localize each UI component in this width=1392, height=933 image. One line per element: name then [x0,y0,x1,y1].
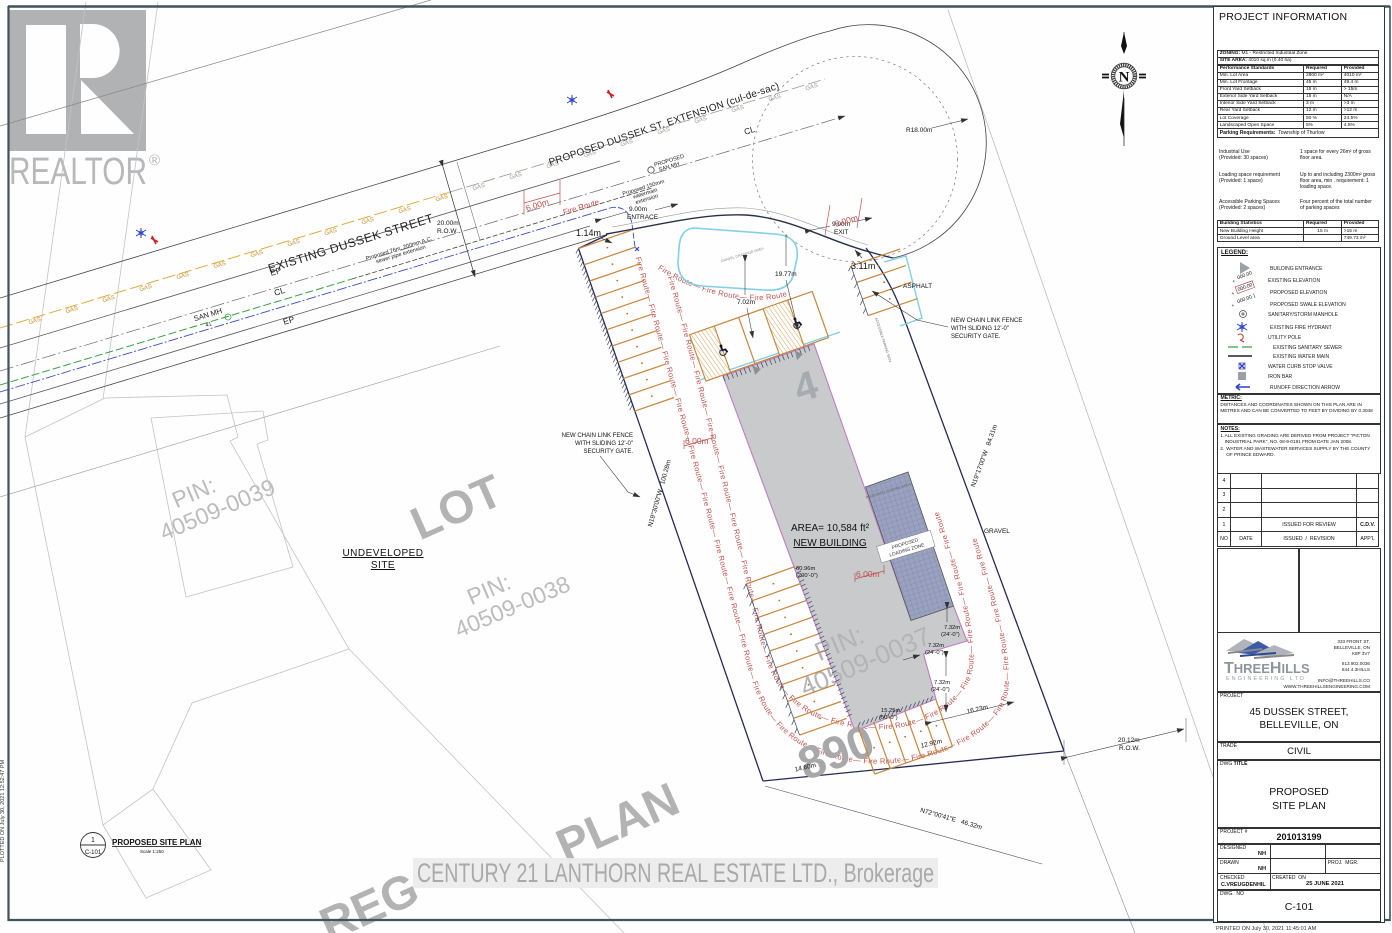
svg-text:3.11m: 3.11m [851,261,875,271]
svg-text:PRINTED ON July 30, 2021 11:45: PRINTED ON July 30, 2021 11:45:01 AM [1216,926,1317,932]
svg-text:EXISTING SANITARY SEWER: EXISTING SANITARY SEWER [1273,345,1342,351]
svg-text:WWW.THREEHILLSENGINEERING.COM: WWW.THREEHILLSENGINEERING.COM [1283,684,1370,689]
svg-text:PLOTTED ON July 30, 2021 12:52: PLOTTED ON July 30, 2021 12:52:47 PM [0,759,6,862]
svg-text:9.00m: 9.00m [629,206,647,213]
svg-text:SECURITY GATE.: SECURITY GATE. [951,334,1001,340]
svg-text:C-101: C-101 [85,850,102,856]
svg-text:®: ® [149,152,160,169]
svg-text:+: + [1231,291,1236,298]
svg-text:7.02m: 7.02m [737,299,755,306]
svg-text:CENTURY 21 LANTHORN REAL ESTAT: CENTURY 21 LANTHORN REAL ESTATE LTD., Br… [417,858,934,888]
svg-text:1.14m: 1.14m [576,228,601,238]
svg-text:EXIT: EXIT [834,229,848,236]
svg-text:+: + [1231,303,1236,310]
svg-text:REALTOR: REALTOR [9,151,147,193]
svg-text:GRAVEL: GRAVEL [984,528,1010,535]
svg-text:ASPHALT: ASPHALT [903,283,932,290]
svg-text:AREA= 10,584 ft²: AREA= 10,584 ft² [791,523,870,534]
svg-text:PROPOSED ELEVATION: PROPOSED ELEVATION [1270,290,1327,296]
svg-text:UTILITY POLE: UTILITY POLE [1268,335,1302,341]
svg-text:THREEHILLS: THREEHILLS [1224,660,1310,677]
svg-text:7.32m: 7.32m [944,625,960,631]
svg-text:R18.00m: R18.00m [906,127,932,134]
svg-text:000.00: 000.00 [1237,282,1254,293]
svg-text:ENGINEERING LTD: ENGINEERING LTD [1226,676,1306,682]
svg-text:844.4.3HILLS: 844.4.3HILLS [1342,667,1370,672]
svg-text:(24'-0"): (24'-0") [931,687,950,693]
svg-text:SANITARY/STORM MANHOLE: SANITARY/STORM MANHOLE [1268,312,1339,318]
svg-text:(50'-0"): (50'-0") [879,715,898,721]
svg-text:SITE: SITE [371,560,395,571]
svg-text:ENTRACE: ENTRACE [627,214,659,221]
svg-text:(200'-0"): (200'-0") [796,573,818,579]
svg-text:R.O.W.: R.O.W. [437,228,458,235]
svg-text:000.00: 000.00 [1237,270,1254,281]
svg-text:PROPOSED SWALE ELEVATION: PROPOSED SWALE ELEVATION [1270,302,1346,308]
svg-text:7.32m: 7.32m [928,643,944,649]
svg-text:BELLEVILLE, ON: BELLEVILLE, ON [1334,645,1370,650]
svg-text:(24'-0"): (24'-0") [941,632,960,638]
svg-text:PROPOSED SITE PLAN: PROPOSED SITE PLAN [112,838,202,847]
svg-text:+: + [1232,278,1237,285]
svg-text:1: 1 [91,837,95,844]
svg-text:EXISTING WATER MAIN: EXISTING WATER MAIN [1273,354,1330,360]
svg-text:SECURITY GATE.: SECURITY GATE. [584,449,634,455]
svg-text:(24'-0"): (24'-0") [925,650,944,656]
svg-text:613.902.0036: 613.902.0036 [1342,661,1371,666]
svg-text:000.00: 000.00 [1237,294,1254,305]
svg-text:60.96m: 60.96m [796,566,816,572]
svg-text:NEW BUILDING: NEW BUILDING [793,538,867,549]
svg-text:NEW CHAIN LINK FENCE: NEW CHAIN LINK FENCE [562,433,633,439]
svg-text:EXISTING FIRE HYDRANT: EXISTING FIRE HYDRANT [1270,325,1332,331]
svg-text:BUILDING ENTRANCE: BUILDING ENTRANCE [1270,266,1323,272]
svg-text:UNDEVELOPED: UNDEVELOPED [342,548,423,559]
svg-text:20.00m: 20.00m [437,220,459,227]
svg-text:RUNOFF DIRECTION ARROW: RUNOFF DIRECTION ARROW [1270,385,1340,391]
svg-text:INFO@THREEHILLS.CO: INFO@THREEHILLS.CO [1318,678,1371,683]
svg-text:19.77m: 19.77m [775,271,797,278]
svg-text:WITH SLIDING 12'-0": WITH SLIDING 12'-0" [951,326,1009,332]
svg-text:K8P 3V7: K8P 3V7 [1352,651,1370,656]
svg-text:333 FRONT ST.: 333 FRONT ST. [1337,639,1370,644]
svg-text:WATER CURB STOP VALVE: WATER CURB STOP VALVE [1268,364,1333,370]
svg-text:7.32m: 7.32m [934,680,950,686]
svg-text:NEW CHAIN LINK FENCE: NEW CHAIN LINK FENCE [951,318,1022,324]
svg-text:N: N [1119,70,1130,86]
svg-text:Scale 1:250: Scale 1:250 [140,849,164,854]
svg-text:R.O.W.: R.O.W. [1119,745,1140,752]
svg-text:IRON BAR: IRON BAR [1268,374,1293,380]
svg-text:EXISTING ELEVATION: EXISTING ELEVATION [1268,278,1320,284]
svg-text:15.25m: 15.25m [881,708,901,714]
svg-text:WITH SLIDING 12'-0": WITH SLIDING 12'-0" [575,441,633,447]
